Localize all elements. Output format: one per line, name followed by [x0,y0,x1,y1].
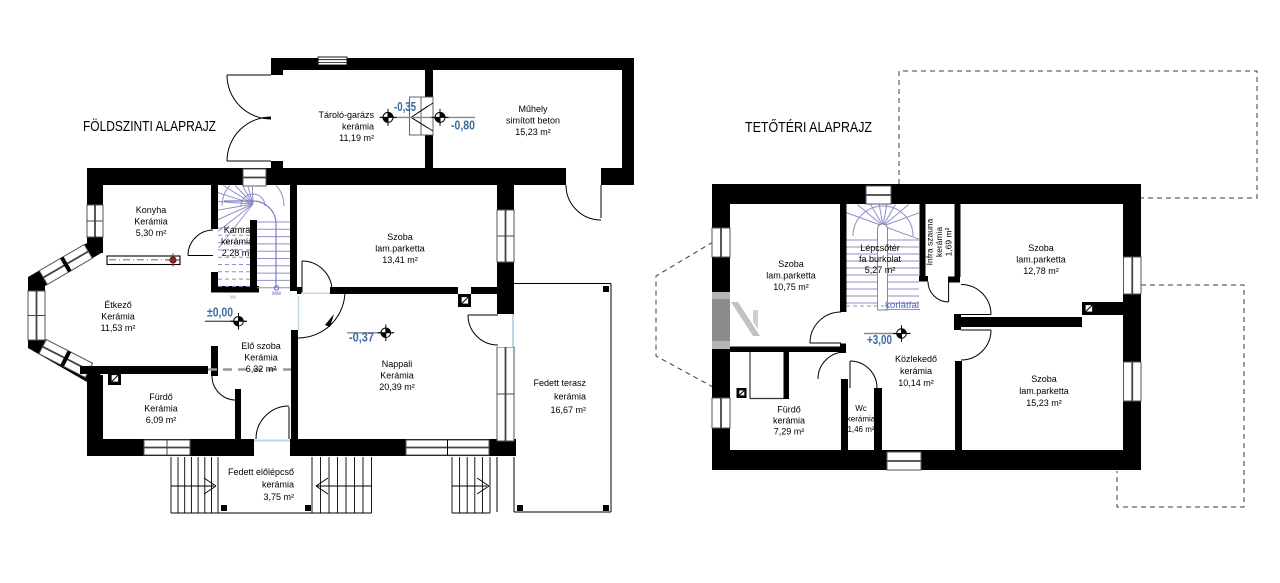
svg-text:6,32 m²: 6,32 m² [246,364,277,374]
svg-text:Elő szoba: Elő szoba [241,341,281,351]
svg-text:1,46 m²: 1,46 m² [847,425,874,434]
svg-text:Kerámia: Kerámia [380,371,414,381]
svg-text:Közlekedő: Közlekedő [895,354,937,364]
svg-text:Kerámia: Kerámia [101,312,135,322]
svg-text:Szoba: Szoba [387,232,413,242]
svg-text:16,67 m²: 16,67 m² [550,405,586,415]
svg-text:Fürdő: Fürdő [777,405,801,415]
svg-text:6,09 m²: 6,09 m² [146,415,177,425]
svg-text:kerámia: kerámia [934,227,944,258]
svg-text:TETŐTÉRI ALAPRAJZ: TETŐTÉRI ALAPRAJZ [745,119,872,136]
svg-text:11,19 m²: 11,19 m² [339,133,374,143]
svg-text:5,27 m²: 5,27 m² [865,265,896,275]
svg-text:3,75 m²: 3,75 m² [263,492,294,502]
svg-text:Szoba: Szoba [1028,243,1054,253]
svg-text:Lépcsőtér: Lépcsőtér [860,243,900,253]
svg-text:Fedett előlépcső: Fedett előlépcső [228,467,294,477]
svg-text:Szoba: Szoba [1031,374,1057,384]
svg-text:lam.parketta: lam.parketta [766,271,816,281]
svg-text:Műhely: Műhely [518,104,548,114]
svg-text:Kamra: Kamra [224,225,251,235]
svg-text:lam.parketta: lam.parketta [375,244,425,254]
svg-text:kerámia: kerámia [221,237,253,247]
svg-text:11,53 m²: 11,53 m² [101,323,136,333]
svg-text:12,78 m²: 12,78 m² [1023,266,1059,276]
svg-text:15,23 m²: 15,23 m² [515,127,551,137]
svg-text:kerámia: kerámia [554,392,586,402]
svg-text:FÖLDSZINTI ALAPRAJZ: FÖLDSZINTI ALAPRAJZ [83,117,216,135]
svg-text:15,23 m²: 15,23 m² [1026,398,1062,408]
svg-text:Szoba: Szoba [778,259,804,269]
svg-text:kerámia: kerámia [847,415,876,424]
svg-text:Kerámia: Kerámia [144,404,178,414]
svg-text:Tároló-garázs: Tároló-garázs [318,110,374,120]
svg-text:kerámia: kerámia [262,480,294,490]
svg-text:fa burkolat: fa burkolat [859,254,902,264]
svg-text:7,29 m²: 7,29 m² [774,427,805,437]
svg-text:simított beton: simított beton [506,116,560,126]
svg-text:+3,00: +3,00 [867,333,892,347]
svg-text:Kerámia: Kerámia [244,353,278,363]
svg-text:Kerámia: Kerámia [134,217,168,227]
svg-text:Étkező: Étkező [104,300,132,310]
svg-text:Nappali: Nappali [382,359,413,369]
svg-text:-0,35: -0,35 [394,100,416,114]
svg-text:1,69 m²: 1,69 m² [944,227,954,256]
svg-text:-0,80: -0,80 [451,119,475,133]
svg-text:kerámia: kerámia [773,416,805,426]
svg-text:kerámia: kerámia [900,366,932,376]
svg-text:Konyha: Konyha [136,205,167,215]
svg-text:Fedett terasz: Fedett terasz [533,378,586,388]
svg-text:±0,00: ±0,00 [207,306,233,320]
svg-text:Wc: Wc [855,404,867,413]
svg-text:10,75 m²: 10,75 m² [773,282,809,292]
svg-text:5,30 m²: 5,30 m² [136,228,167,238]
svg-text:kerámia: kerámia [342,122,374,132]
svg-text:lam.parketta: lam.parketta [1016,255,1066,265]
svg-text:10,14 m²: 10,14 m² [898,378,934,388]
svg-text:13,41 m²: 13,41 m² [382,255,418,265]
svg-text:20,39 m²: 20,39 m² [379,382,415,392]
svg-text:Infra szauna: Infra szauna [925,218,935,265]
svg-text:-0,37: -0,37 [349,331,374,345]
svg-text:2,28 m²: 2,28 m² [222,248,253,258]
svg-text:Fürdő: Fürdő [149,392,173,402]
svg-text:lam.parketta: lam.parketta [1019,386,1069,396]
